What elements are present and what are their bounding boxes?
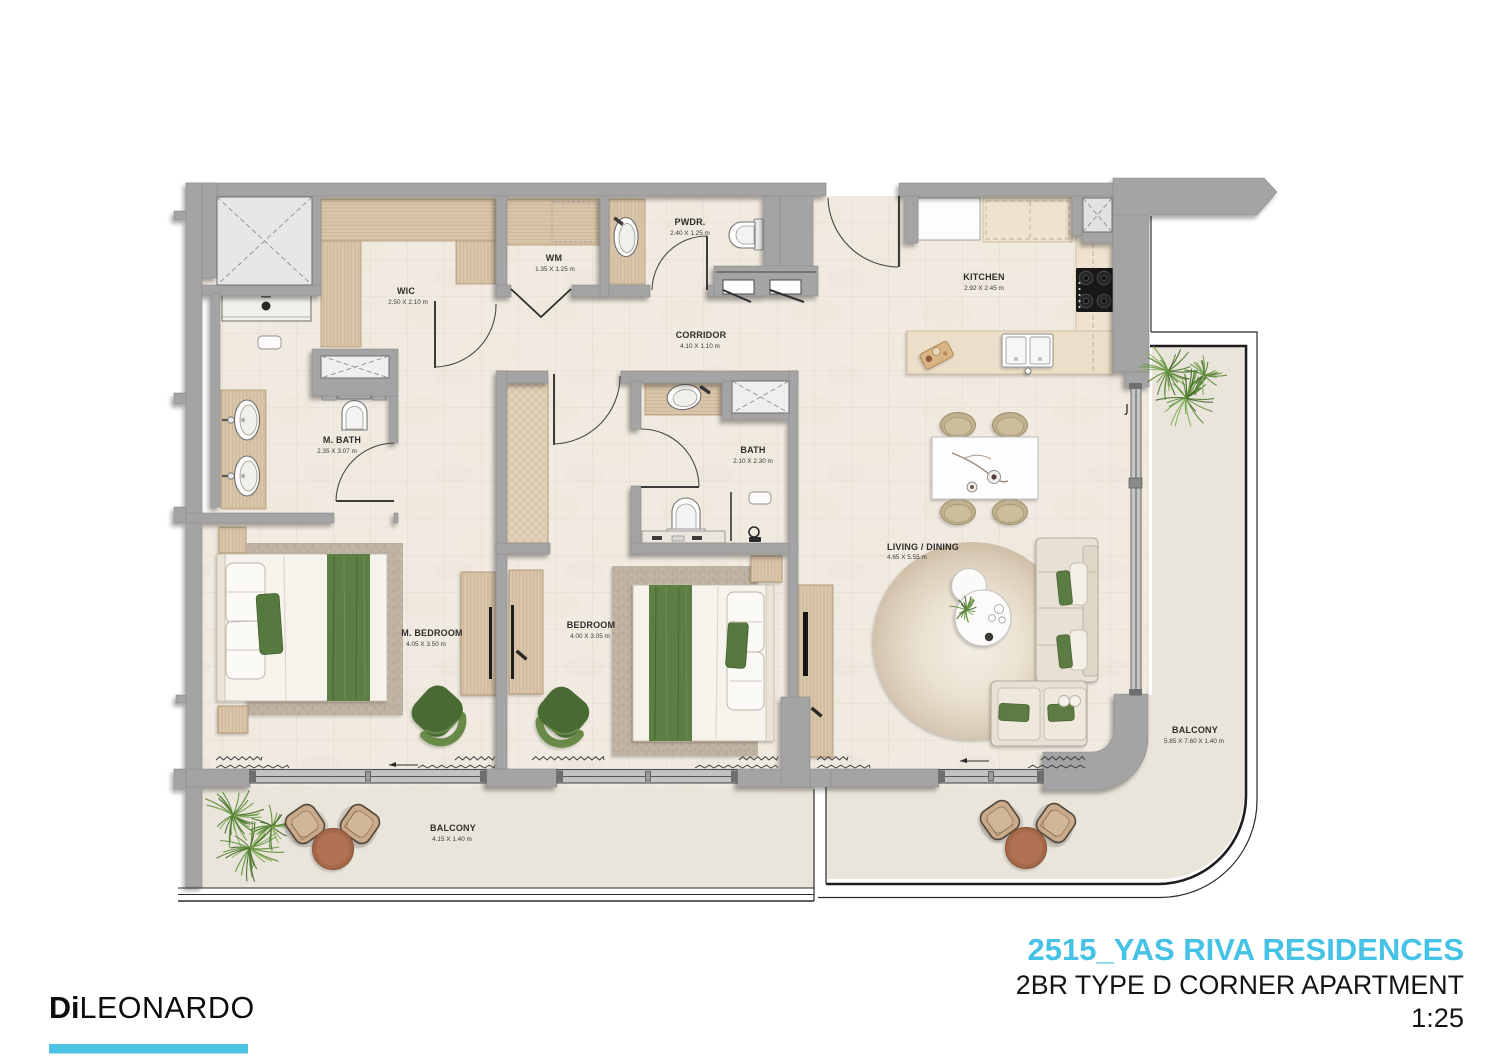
svg-text:2515_YAS RIVA RESIDENCES: 2515_YAS RIVA RESIDENCES: [1028, 932, 1464, 967]
svg-text:5.85 X 7.60 X 1.40 m: 5.85 X 7.60 X 1.40 m: [1164, 738, 1224, 745]
svg-text:2.35 X 3.07 m: 2.35 X 3.07 m: [317, 448, 357, 455]
svg-text:4.65 X 5.55 m: 4.65 X 5.55 m: [887, 554, 927, 561]
svg-text:WIC: WIC: [397, 286, 415, 296]
svg-text:2.50 X 2.10 m: 2.50 X 2.10 m: [388, 299, 428, 306]
svg-text:LIVING / DINING: LIVING / DINING: [887, 542, 959, 552]
svg-text:2.10 X 2.30 m: 2.10 X 2.30 m: [733, 458, 773, 465]
svg-text:2.40 X 1.25 m: 2.40 X 1.25 m: [670, 230, 710, 237]
svg-text:2BR TYPE D CORNER APARTMENT: 2BR TYPE D CORNER APARTMENT: [1016, 970, 1464, 1000]
svg-text:BALCONY: BALCONY: [1172, 725, 1218, 735]
svg-text:1:25: 1:25: [1411, 1002, 1464, 1033]
svg-text:M. BATH: M. BATH: [323, 435, 361, 445]
svg-text:BEDROOM: BEDROOM: [567, 620, 615, 630]
svg-text:M. BEDROOM: M. BEDROOM: [401, 628, 463, 638]
svg-text:4.05 X 3.50 m: 4.05 X 3.50 m: [406, 641, 446, 648]
svg-text:WM: WM: [546, 253, 562, 263]
svg-text:1.35 X 1.25 m: 1.35 X 1.25 m: [535, 266, 575, 273]
svg-text:4.15 X 1.40 m: 4.15 X 1.40 m: [432, 836, 472, 843]
svg-text:BALCONY: BALCONY: [430, 823, 476, 833]
svg-text:4.10 X 1.10 m: 4.10 X 1.10 m: [680, 343, 720, 350]
svg-text:CORRIDOR: CORRIDOR: [676, 330, 727, 340]
svg-text:DiLEONARDO: DiLEONARDO: [49, 991, 255, 1025]
svg-text:4.00 X 3.05 m: 4.00 X 3.05 m: [570, 633, 610, 640]
svg-text:2.92 X 2.45 m: 2.92 X 2.45 m: [964, 285, 1004, 292]
svg-text:BATH: BATH: [740, 445, 765, 455]
svg-text:PWDR.: PWDR.: [675, 217, 706, 227]
svg-text:KITCHEN: KITCHEN: [963, 272, 1004, 282]
